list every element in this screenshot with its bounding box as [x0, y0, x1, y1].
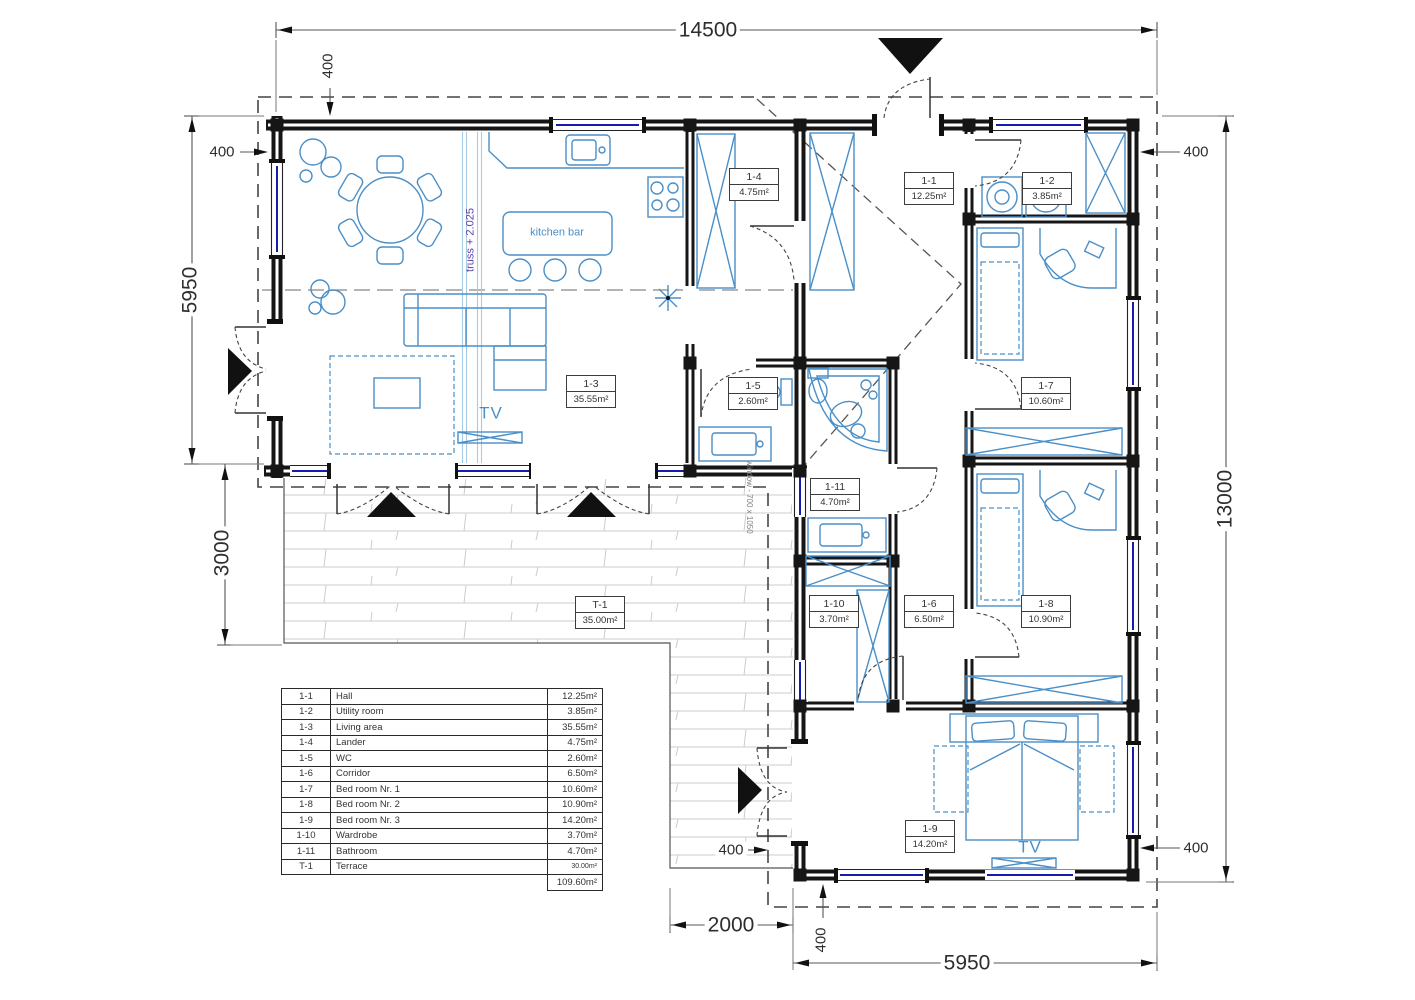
dim-left-upper: 5950	[179, 264, 202, 317]
legend-room-code: 1-4	[282, 735, 331, 751]
legend-room-name: Terrace	[331, 859, 548, 875]
room-legend-table: 1-1 Hall 12.25m² 1-2 Utility room 3.85m²…	[281, 688, 603, 891]
legend-room-name: Bed room Nr. 3	[331, 813, 548, 829]
legend-room-name: WC	[331, 751, 548, 767]
room-label-1-5: 1-5 2.60m²	[728, 377, 778, 410]
dim-offset-top: 400	[320, 50, 337, 81]
legend-room-code: 1-7	[282, 782, 331, 798]
legend-room-name: Wardrobe	[331, 828, 548, 844]
legend-empty-cell	[331, 875, 548, 891]
legend-room-area: 14.20m²	[548, 813, 603, 829]
legend-row: T-1 Terrace 30.00m²	[282, 859, 603, 875]
closet-hall	[810, 133, 854, 290]
tv-label-living: TV	[476, 404, 506, 423]
dim-offset-terrace: 400	[715, 842, 746, 859]
tv-label-bedroom3: TV	[1015, 838, 1045, 857]
living-room-furniture	[330, 294, 546, 454]
legend-room-code: 1-2	[282, 704, 331, 720]
legend-room-area: 3.85m²	[548, 704, 603, 720]
legend-room-code: 1-9	[282, 813, 331, 829]
room-label-1-1: 1-1 12.25m²	[904, 172, 954, 205]
legend-row: 1-10 Wardrobe 3.70m²	[282, 828, 603, 844]
kitchen-bar-label: kitchen bar	[527, 227, 587, 240]
legend-room-area: 4.70m²	[548, 844, 603, 860]
room-label-1-8: 1-8 10.90m²	[1021, 595, 1071, 628]
dim-offset-right-top: 400	[1180, 144, 1211, 161]
bedroom2-furniture	[977, 470, 1116, 606]
floor-plan-page: 14500 5950 3000 13000 2000 5950 400 400 …	[0, 0, 1415, 1000]
entrance-arrow-left	[228, 348, 252, 395]
legend-room-name: Bathroom	[331, 844, 548, 860]
room-label-1-3: 1-3 35.55m²	[566, 375, 616, 408]
room-label-1-6: 1-6 6.50m²	[904, 595, 954, 628]
legend-row: 1-6 Corridor 6.50m²	[282, 766, 603, 782]
legend-room-name: Bed room Nr. 2	[331, 797, 548, 813]
legend-room-name: Utility room	[331, 704, 548, 720]
bedroom1-furniture	[977, 228, 1116, 360]
legend-row: 1-5 WC 2.60m²	[282, 751, 603, 767]
legend-room-area: 10.60m²	[548, 782, 603, 798]
legend-row: 1-7 Bed room Nr. 1 10.60m²	[282, 782, 603, 798]
dim-top-width: 14500	[676, 19, 740, 42]
legend-row: 1-8 Bed room Nr. 2 10.90m²	[282, 797, 603, 813]
closet-utility	[1086, 133, 1125, 213]
kitchen-fan-icon	[655, 285, 681, 311]
dim-bottom-terrace: 2000	[705, 914, 758, 937]
tv-unit-living	[458, 432, 522, 443]
legend-room-area: 4.75m²	[548, 735, 603, 751]
window-note: window - 700 x 1050	[744, 457, 754, 536]
kitchen	[489, 132, 684, 311]
room-label-1-4: 1-4 4.75m²	[729, 168, 779, 201]
dim-bottom-right: 5950	[941, 952, 994, 975]
room-label-1-10: 1-10 3.70m²	[809, 595, 859, 628]
legend-row: 1-1 Hall 12.25m²	[282, 689, 603, 705]
legend-room-area: 3.70m²	[548, 828, 603, 844]
room-label-1-2: 1-2 3.85m²	[1022, 172, 1072, 205]
legend-room-area: 12.25m²	[548, 689, 603, 705]
closet-wardrobe-side	[857, 590, 889, 702]
legend-room-area: 30.00m²	[548, 859, 603, 875]
closet-bedroom1	[966, 428, 1122, 455]
legend-room-name: Lander	[331, 735, 548, 751]
room-label-1-7: 1-7 10.60m²	[1021, 377, 1071, 410]
legend-row: 1-2 Utility room 3.85m²	[282, 704, 603, 720]
legend-room-code: 1-3	[282, 720, 331, 736]
room-label-1-11: 1-11 4.70m²	[810, 478, 860, 511]
legend-room-name: Living area	[331, 720, 548, 736]
room-label-1-9: 1-9 14.20m²	[905, 820, 955, 853]
bathroom-fixtures	[808, 368, 887, 552]
legend-room-name: Bed room Nr. 1	[331, 782, 548, 798]
dim-left-lower: 3000	[211, 527, 234, 580]
dim-offset-right-bottom: 400	[1180, 840, 1211, 857]
legend-room-area: 10.90m²	[548, 797, 603, 813]
legend-room-code: T-1	[282, 859, 331, 875]
legend-row: 1-4 Lander 4.75m²	[282, 735, 603, 751]
dim-right-height: 13000	[1214, 467, 1237, 531]
dim-offset-left: 400	[206, 144, 237, 161]
closet-lander	[697, 134, 735, 288]
legend-room-name: Hall	[331, 689, 548, 705]
legend-empty-cell	[282, 875, 331, 891]
legend-room-code: 1-6	[282, 766, 331, 782]
legend-total-area: 109.60m²	[548, 875, 603, 891]
legend-room-code: 1-1	[282, 689, 331, 705]
dining-table-set	[337, 156, 444, 264]
tv-unit-bedroom3	[992, 858, 1056, 868]
legend-room-code: 1-10	[282, 828, 331, 844]
legend-room-area: 6.50m²	[548, 766, 603, 782]
legend-room-code: 1-8	[282, 797, 331, 813]
room-label-T-1: T-1 35.00m²	[575, 596, 625, 629]
truss-note: truss + 2.025	[465, 205, 478, 275]
legend-room-area: 35.55m²	[548, 720, 603, 736]
legend-room-area: 2.60m²	[548, 751, 603, 767]
entrance-arrow-top	[878, 38, 943, 74]
dim-offset-bottom: 400	[813, 924, 830, 955]
legend-room-code: 1-5	[282, 751, 331, 767]
legend-row: 1-9 Bed room Nr. 3 14.20m²	[282, 813, 603, 829]
legend-room-name: Corridor	[331, 766, 548, 782]
legend-room-code: 1-11	[282, 844, 331, 860]
legend-row: 1-11 Bathroom 4.70m²	[282, 844, 603, 860]
closet-bedroom2	[966, 676, 1122, 703]
legend-row: 1-3 Living area 35.55m²	[282, 720, 603, 736]
legend-total-row: 109.60m²	[282, 875, 603, 891]
